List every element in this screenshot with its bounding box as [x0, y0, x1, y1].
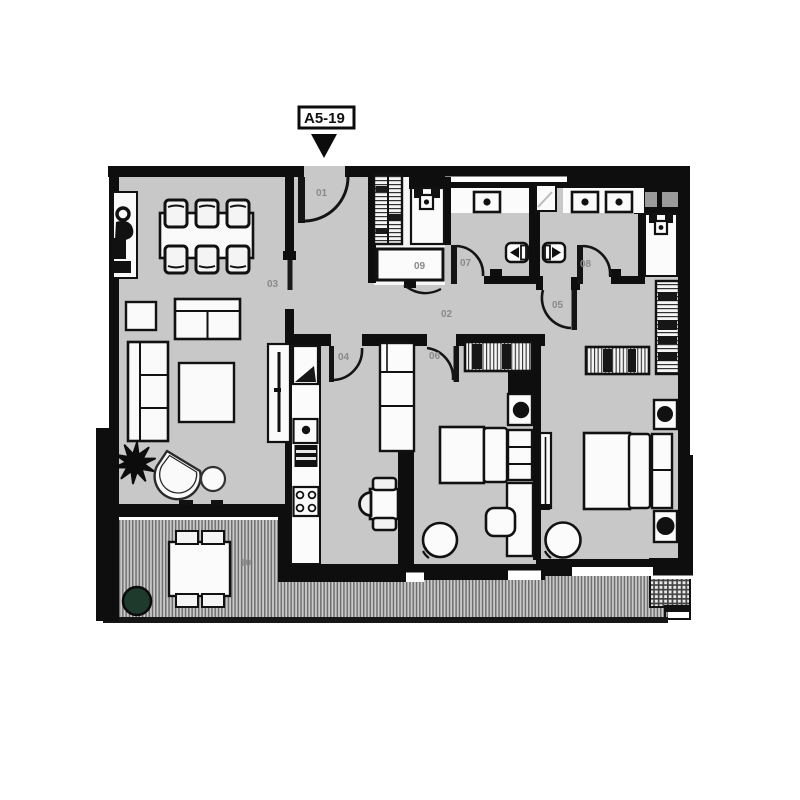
svg-text:07: 07: [460, 258, 472, 269]
svg-text:04: 04: [338, 352, 350, 363]
svg-text:10: 10: [240, 558, 252, 569]
svg-text:03: 03: [267, 279, 279, 290]
svg-text:09: 09: [414, 261, 426, 272]
svg-text:02: 02: [441, 309, 453, 320]
svg-text:06: 06: [429, 351, 441, 362]
svg-text:08: 08: [580, 259, 592, 270]
svg-text:A5-19: A5-19: [304, 110, 345, 127]
svg-text:05: 05: [552, 300, 564, 311]
svg-text:01: 01: [316, 188, 328, 199]
